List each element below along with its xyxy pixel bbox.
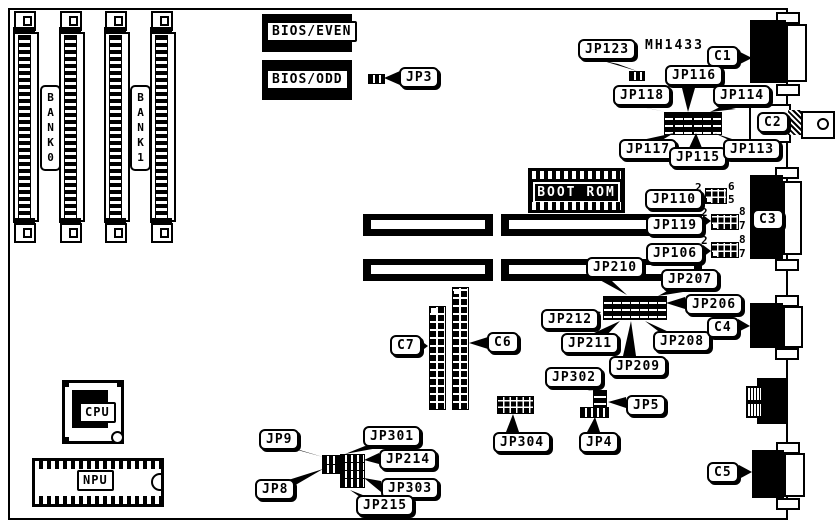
- jp119-pin-8: 8: [739, 205, 746, 218]
- jp116-callout: JP116: [665, 65, 723, 86]
- jp209-callout: JP209: [609, 356, 667, 377]
- jp110-pin-5: 5: [728, 193, 735, 206]
- c4-callout: C4: [707, 317, 739, 338]
- jp210-callout: JP210: [586, 257, 644, 278]
- jp301-callout: JP301: [363, 426, 421, 447]
- jp114-callout: JP114: [713, 85, 771, 106]
- jp206-callout: JP206: [685, 294, 743, 315]
- c1-callout: C1: [707, 46, 739, 67]
- jp123-callout: JP123: [578, 39, 636, 60]
- jp5-callout: JP5: [626, 395, 666, 416]
- jp208-callout: JP208: [653, 331, 711, 352]
- jp8-callout: JP8: [255, 479, 295, 500]
- c2-callout: C2: [757, 112, 789, 133]
- jp212-callout: JP212: [541, 309, 599, 330]
- jp106-pin-8: 8: [739, 233, 746, 246]
- jp110-pin-6: 6: [728, 180, 735, 193]
- jp113-callout: JP113: [723, 139, 781, 160]
- c3-callout: C3: [752, 209, 784, 230]
- jp215-callout: JP215: [356, 495, 414, 516]
- jp9-callout: JP9: [259, 429, 299, 450]
- jp214-callout: JP214: [379, 449, 437, 470]
- c7-callout: C7: [390, 335, 422, 356]
- jp302-callout: JP302: [545, 367, 603, 388]
- jp211-callout: JP211: [561, 333, 619, 354]
- jp106-callout: JP106: [646, 243, 704, 264]
- motherboard-diagram: BANK0 BANK1 BIOS/EVEN BIOS/ODD BOOT ROM …: [0, 0, 837, 527]
- jp4-callout: JP4: [579, 432, 619, 453]
- jp118-callout: JP118: [613, 85, 671, 106]
- c6-callout: C6: [487, 332, 519, 353]
- jp207-callout: JP207: [661, 269, 719, 290]
- jp119-pin-7: 7: [739, 219, 746, 232]
- jp304-callout: JP304: [493, 432, 551, 453]
- jp110-callout: JP110: [645, 189, 703, 210]
- c5-callout: C5: [707, 462, 739, 483]
- part-number: MH1433: [645, 38, 704, 53]
- jp119-callout: JP119: [646, 215, 704, 236]
- jp115-callout: JP115: [669, 147, 727, 168]
- jp3-callout: JP3: [399, 67, 439, 88]
- jp106-pin-7: 7: [739, 247, 746, 260]
